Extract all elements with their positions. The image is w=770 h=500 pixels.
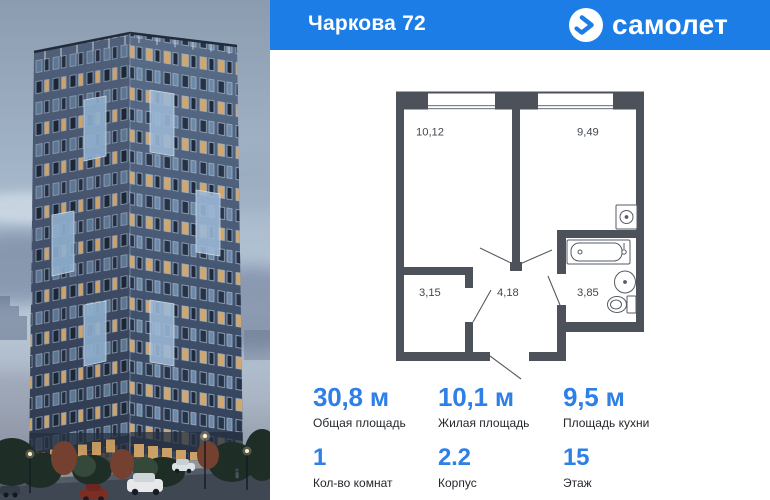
card-header: Чаркова 72 самолет [270, 0, 770, 50]
stat-living-area: 10,1 м Жилая площадь [438, 383, 563, 430]
toilet-icon [608, 296, 637, 313]
stat-value: 9,5 м [563, 383, 688, 411]
stat-total-area: 30,8 м Общая площадь [313, 383, 438, 430]
sink-icon [615, 271, 636, 293]
stat-value: 1 [313, 445, 438, 471]
room-label: 3,15 [419, 287, 441, 299]
stat-label: Этаж [563, 476, 688, 490]
washer-icon [616, 205, 637, 229]
stat-label: Кол-во комнат [313, 476, 438, 490]
stat-value: 30,8 м [313, 383, 438, 411]
room-label: 10,12 [416, 127, 444, 139]
stat-label: Жилая площадь [438, 416, 563, 430]
stat-floor: 15 Этаж [563, 445, 688, 490]
samolet-logo: самолет [568, 7, 728, 43]
room-label: 4,18 [497, 287, 519, 299]
stats-secondary: 1 Кол-во комнат 2.2 Корпус 15 Этаж [313, 445, 688, 490]
stat-building-number: 2.2 Корпус [438, 445, 563, 490]
stat-value: 2.2 [438, 445, 563, 471]
stat-label: Площадь кухни [563, 416, 688, 430]
info-panel: Чаркова 72 самолет [270, 0, 770, 500]
stat-label: Общая площадь [313, 416, 438, 430]
stat-label: Корпус [438, 476, 563, 490]
samolet-logo-icon [568, 7, 604, 43]
project-title: Чаркова 72 [308, 12, 426, 36]
tower [15, 28, 246, 483]
stat-rooms-count: 1 Кол-во комнат [313, 445, 438, 490]
stat-value: 15 [563, 445, 688, 471]
stat-kitchen-area: 9,5 м Площадь кухни [563, 383, 688, 430]
listing-card[interactable]: Чаркова 72 самолет [0, 0, 770, 500]
pedestrian [235, 468, 238, 478]
stat-value: 10,1 м [438, 383, 563, 411]
brand-name: самолет [612, 7, 728, 43]
bathtub-icon [567, 240, 630, 264]
building-render-illustration [0, 0, 270, 500]
stats-primary: 30,8 м Общая площадь 10,1 м Жилая площад… [313, 383, 688, 430]
building-photo [0, 0, 270, 500]
room-label: 3,85 [577, 287, 599, 299]
floor-plan: 10,12 9,49 3,15 4,18 3,85 [394, 90, 646, 383]
room-label: 9,49 [577, 127, 599, 139]
